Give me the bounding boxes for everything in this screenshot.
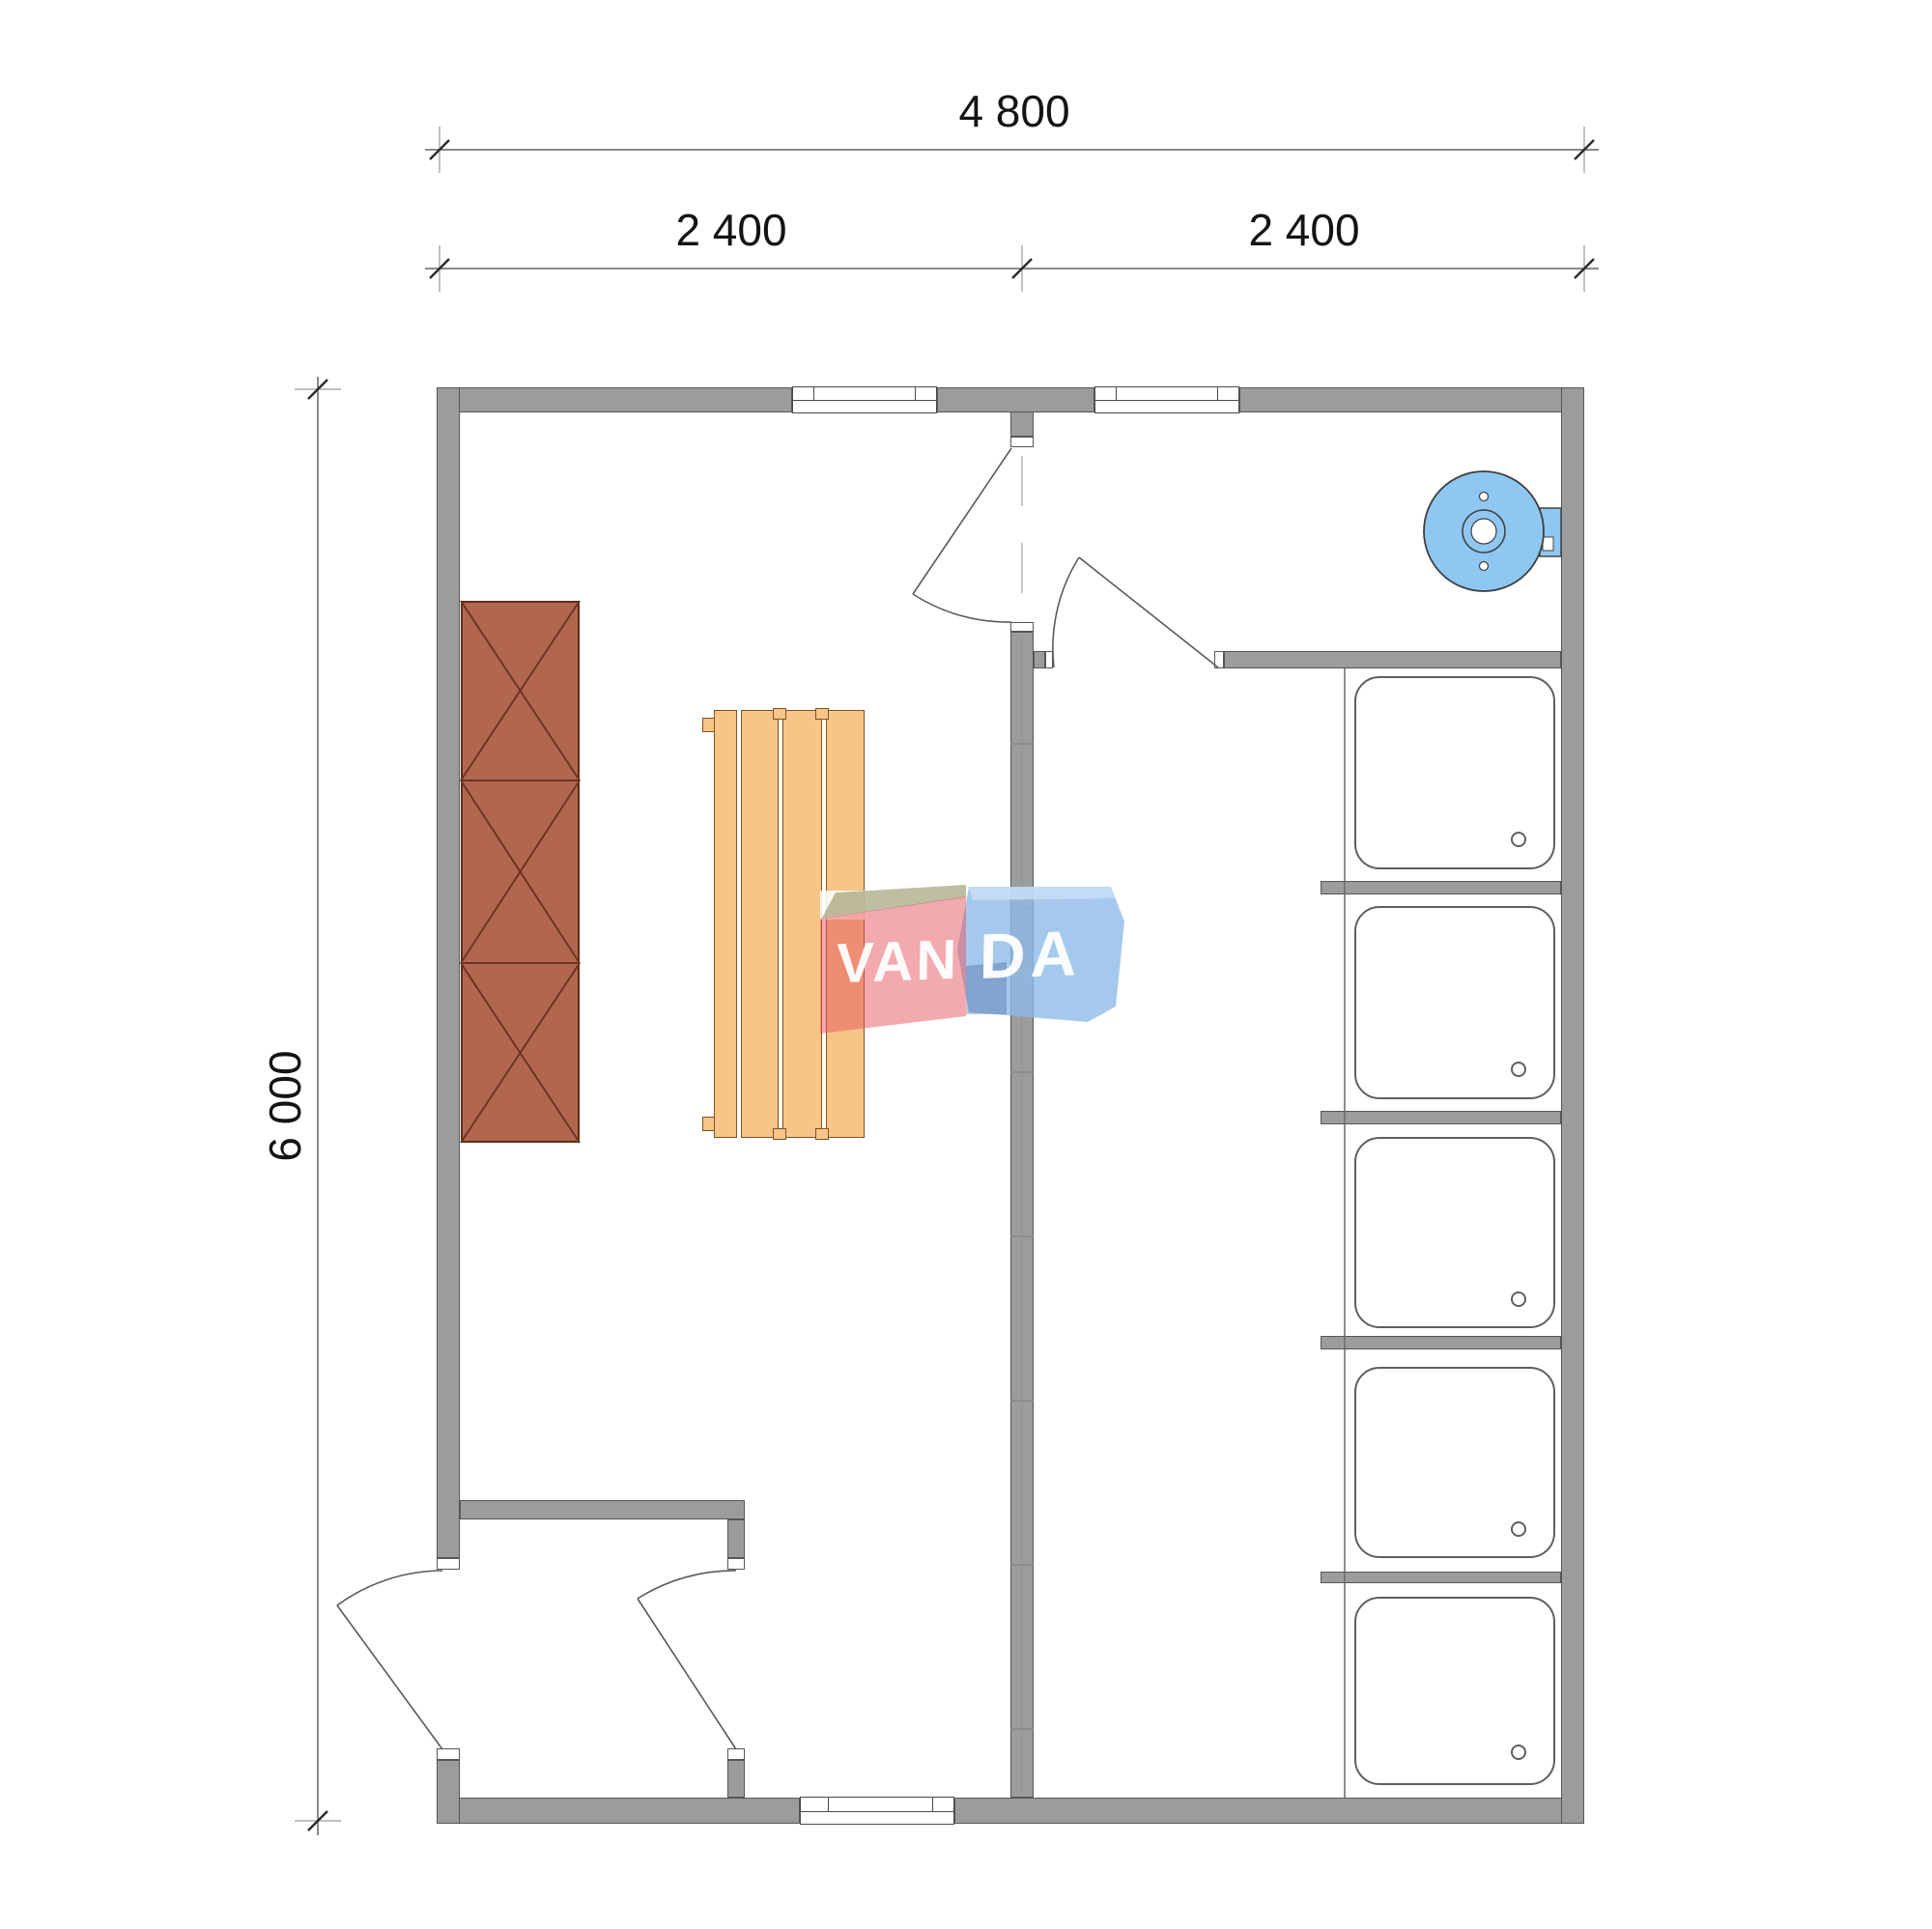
dim-label-width-total: 4 800 xyxy=(918,85,1111,137)
window-frame-divider xyxy=(813,387,814,400)
door-jamb xyxy=(727,1558,745,1570)
shower-tray xyxy=(1354,1597,1555,1785)
watermark-text-left: VAN xyxy=(836,927,959,996)
bench-cleat xyxy=(773,1128,786,1140)
door-swing-arc xyxy=(1053,557,1079,667)
door-leaf xyxy=(913,448,1011,594)
door-leaf xyxy=(337,1605,442,1749)
linework-layer xyxy=(0,0,1932,1929)
window-frame-divider xyxy=(915,387,916,400)
wall-vestibule-stub-lower xyxy=(727,1760,745,1798)
window-frame-divider xyxy=(828,1798,829,1811)
door-jamb xyxy=(1010,437,1034,447)
window-frame-divider xyxy=(1116,387,1117,400)
window-glass-line xyxy=(1095,400,1238,401)
door-jamb xyxy=(727,1748,745,1760)
watermark-text-right: DA xyxy=(979,916,1082,993)
dim-label-height-total: 6 000 xyxy=(259,1009,311,1203)
door-leaf xyxy=(638,1599,736,1749)
door-sauna xyxy=(913,448,1022,622)
sauna-stove-cabinet xyxy=(461,601,580,1143)
door-entrance-exterior xyxy=(337,1571,442,1749)
wall-shower-top-stub xyxy=(1034,651,1045,668)
shower-partition xyxy=(1321,1572,1561,1583)
shower-drain-icon xyxy=(1511,832,1526,847)
wall-right xyxy=(1561,387,1584,1824)
bench-slat xyxy=(826,710,865,1138)
bench-slat xyxy=(782,710,822,1138)
door-jamb xyxy=(1010,622,1034,632)
wall-top-right xyxy=(1239,387,1584,412)
wall-left-upper xyxy=(437,387,460,1558)
wall-bottom-left xyxy=(437,1798,800,1824)
window-bottom xyxy=(800,1797,954,1825)
wall-interior-stub-top xyxy=(1010,411,1034,437)
window-glass-line xyxy=(793,400,936,401)
wall-vestibule-stub-upper xyxy=(727,1519,745,1558)
bench-cleat xyxy=(815,1128,829,1140)
shower-partition xyxy=(1321,881,1561,894)
wall-interior-main xyxy=(1010,632,1034,1798)
shower-drain-icon xyxy=(1511,1521,1526,1537)
door-jamb xyxy=(1214,651,1224,668)
wall-vestibule-top xyxy=(460,1500,745,1519)
shower-drain-icon xyxy=(1511,1291,1526,1307)
bench-cleat xyxy=(773,708,786,720)
door-jamb xyxy=(1045,651,1053,668)
door-swing-arc xyxy=(638,1571,736,1599)
wall-shower-top xyxy=(1224,651,1561,668)
window-frame-divider xyxy=(932,1798,933,1811)
bench-slat xyxy=(741,710,779,1138)
water-heater-icon xyxy=(1424,471,1561,591)
window-top-right xyxy=(1094,386,1239,413)
window-frame-divider xyxy=(1217,387,1218,400)
door-vestibule-interior xyxy=(638,1571,736,1749)
floor-plan-canvas: VAN DA 4 800 2 400 2 400 6 000 xyxy=(0,0,1932,1929)
bench-cleat xyxy=(815,708,829,720)
dim-label-width-left: 2 400 xyxy=(635,204,828,256)
dim-label-width-right: 2 400 xyxy=(1207,204,1401,256)
wall-top-left xyxy=(437,387,792,412)
door-jamb xyxy=(437,1558,460,1570)
shower-partition xyxy=(1321,1336,1561,1349)
door-leaf xyxy=(1079,557,1218,667)
shower-partition xyxy=(1321,1111,1561,1124)
window-top-left xyxy=(792,386,937,413)
door-swing-arc xyxy=(913,594,1011,622)
wall-top-middle xyxy=(937,387,1094,412)
wall-left-lower xyxy=(437,1760,460,1824)
shower-drain-icon xyxy=(1511,1062,1526,1077)
shower-drain-icon xyxy=(1511,1745,1526,1760)
bench-slat xyxy=(714,710,737,1138)
window-glass-line xyxy=(801,1811,953,1812)
door-shower-room xyxy=(1053,557,1218,667)
wall-bottom-right xyxy=(954,1798,1584,1824)
door-jamb xyxy=(437,1748,460,1760)
door-swing-arc xyxy=(337,1571,442,1605)
